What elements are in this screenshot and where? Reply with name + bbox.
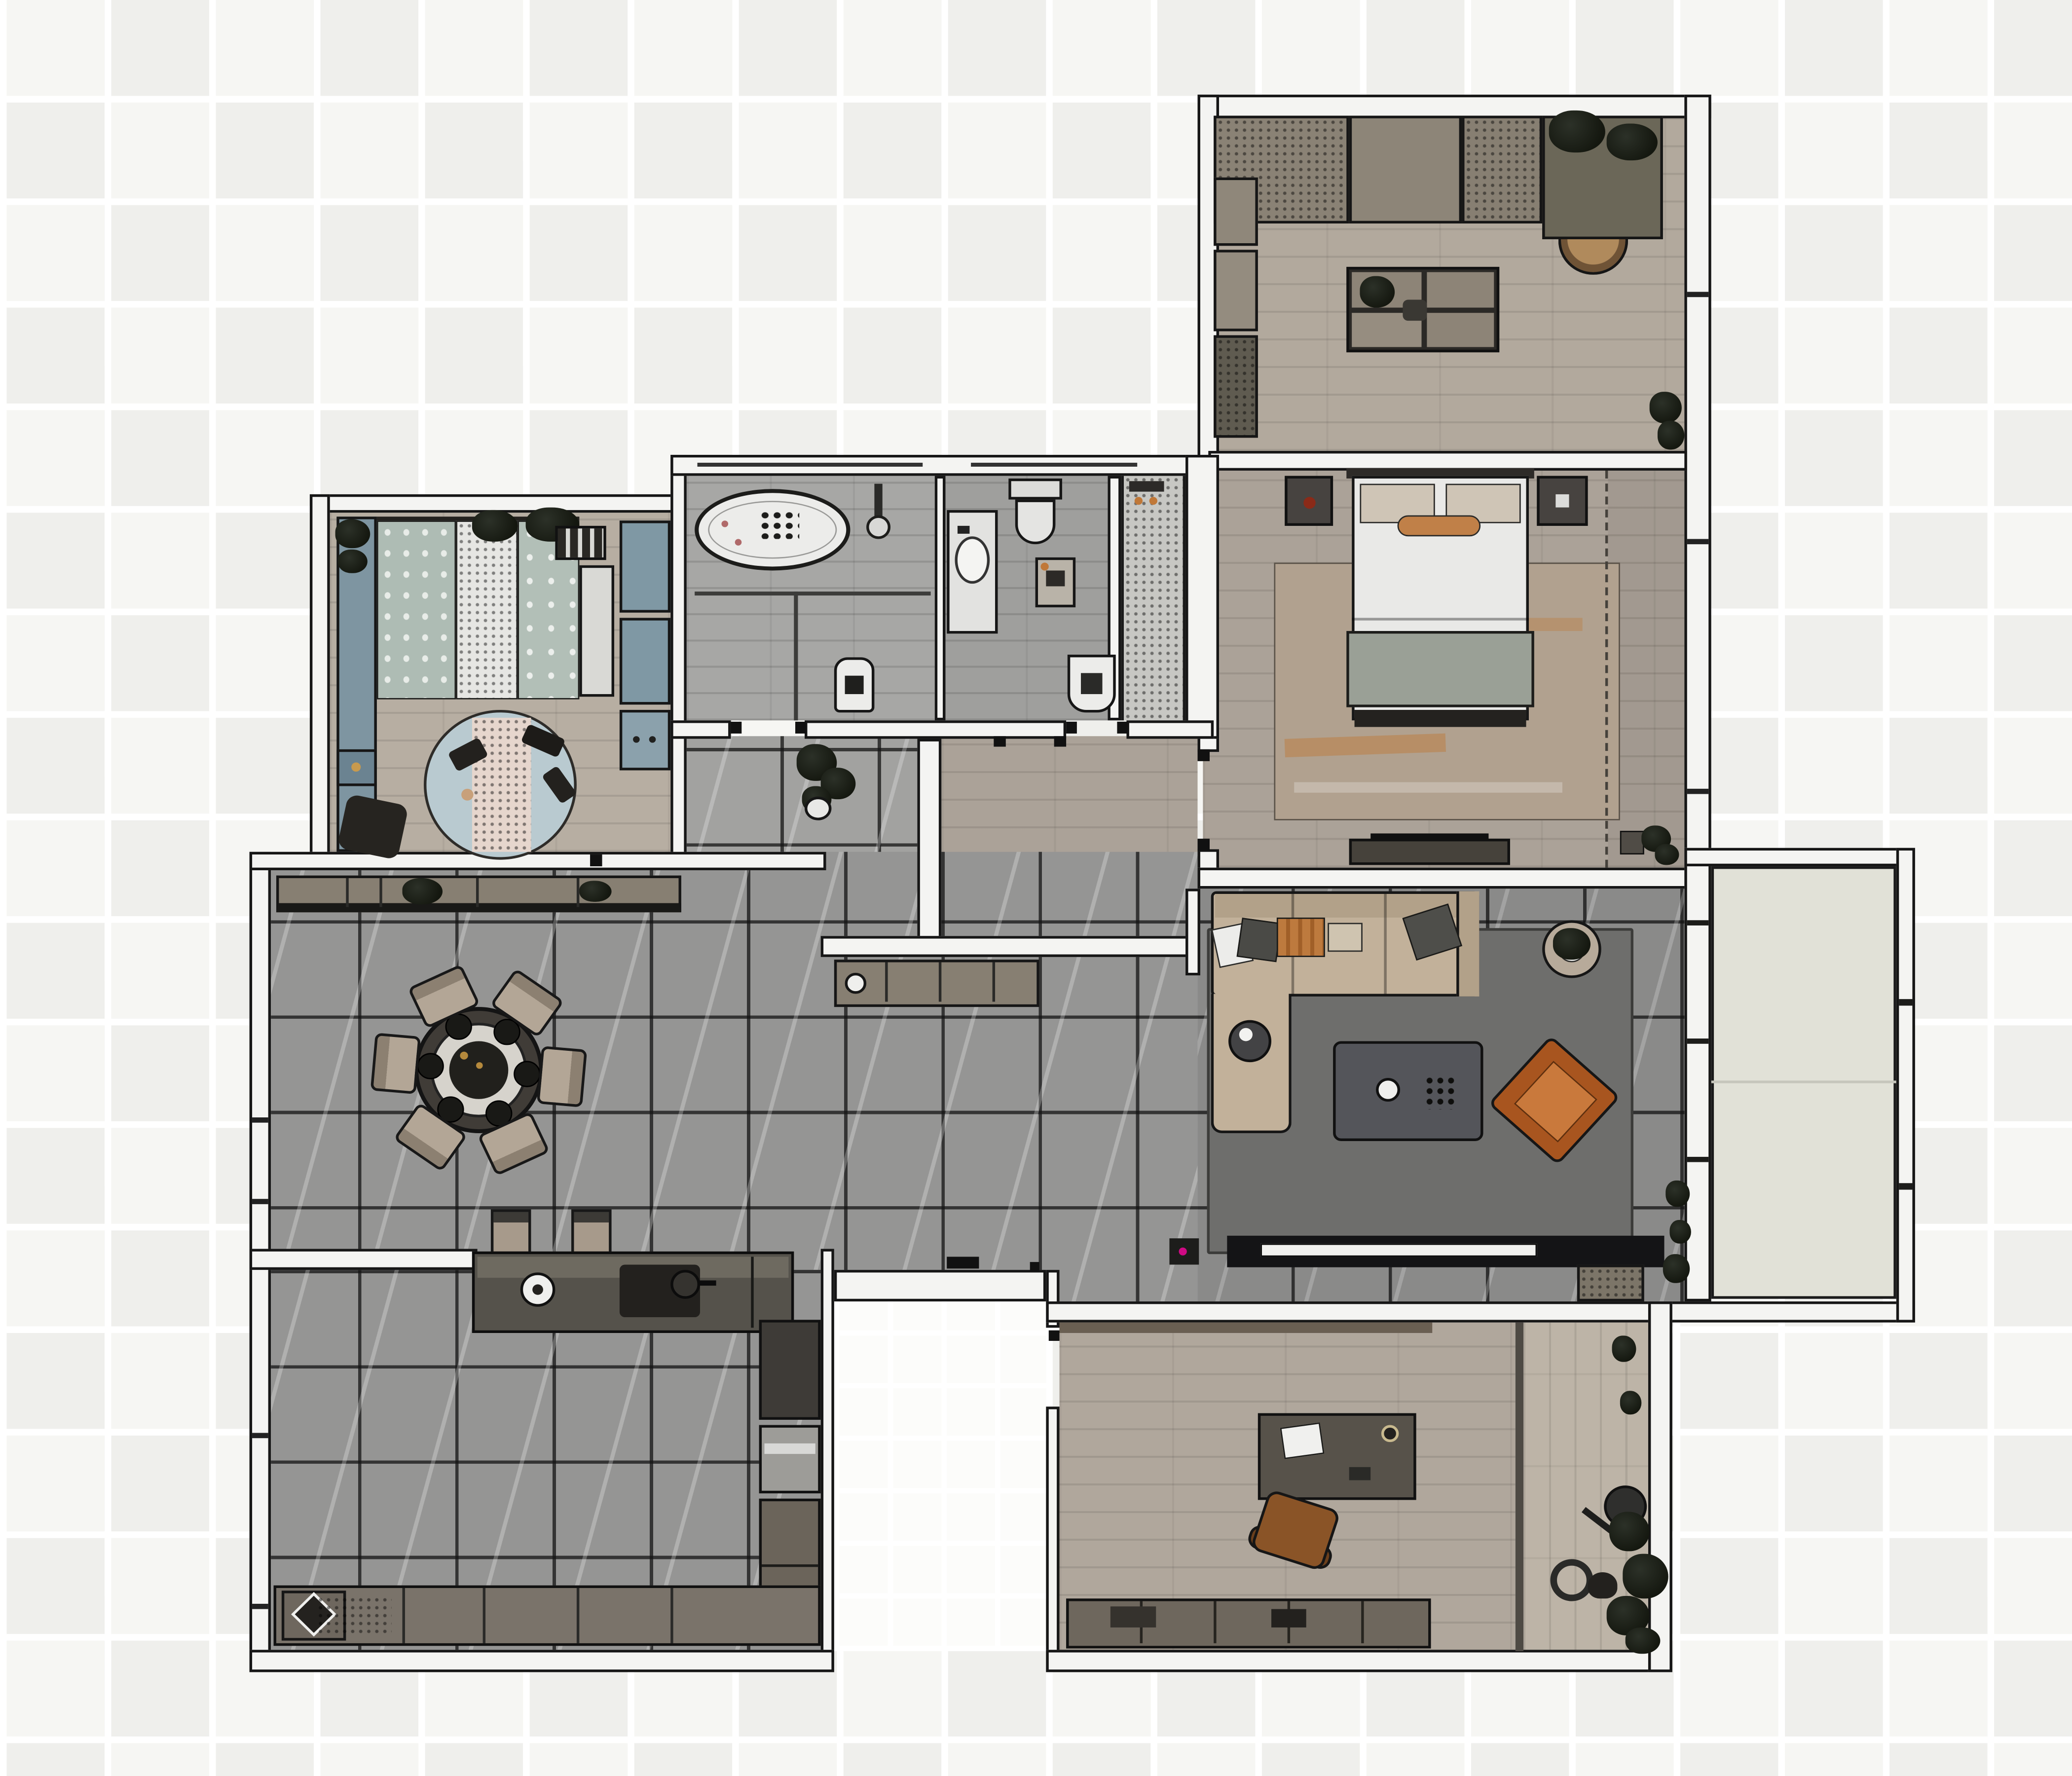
balcony-rail-mark-1 [1899,999,1912,1005]
window-wc-top [971,463,1137,467]
study-table-quadrant-4 [1427,313,1494,347]
study-counter-foliage-1 [1549,111,1605,152]
kitchen-fridge [759,1320,821,1420]
wc-shelf-accent [1040,562,1048,570]
living-small-side-table-decor [1239,1028,1253,1041]
window-tick-dining-2 [252,1199,268,1204]
shower-glass-horizontal [695,592,930,595]
window-tick-dining-1 [252,1117,268,1123]
balcony-right-rail [1896,848,1915,1323]
corridor-sideboard-divider-3 [993,962,995,1002]
office-strip-plant-1 [1612,1335,1636,1362]
wall-south-band [1046,1301,1915,1323]
hall-sideboard-decor-1 [403,878,443,904]
coffee-table-decor [1424,1075,1456,1110]
shower-faucet-knob-1 [1135,497,1143,505]
shower-head [866,516,890,539]
bathtub-petal-pink-1 [721,520,728,527]
window-tick-kitchen-2 [252,1604,268,1609]
sofa-cushion-line-2 [1384,894,1386,994]
washing-machine-door [1081,673,1102,694]
door-hinge-bedroom [1198,749,1210,761]
entrance-door-hinge [1030,1262,1039,1271]
hall-sideboard-divider-2 [379,878,382,907]
shower-head-stem [874,484,882,518]
window-bath-top [698,463,923,467]
office-desk-lamp [1381,1425,1399,1443]
bed-throw-blanket [1346,631,1534,707]
kitchen-counter-divider-3 [577,1588,579,1643]
wall-bath-bottom-b [805,720,1066,739]
shower-glass-vertical [794,592,798,720]
plant-side-table-foliage [1553,928,1591,960]
wall-bedroom-bottom [1198,868,1711,889]
wall-kitchen-bottom [250,1650,834,1672]
dining-chair-1 [537,1046,587,1108]
wall-office-bottom [1046,1650,1672,1672]
kids-bed-band-blanket [456,520,518,699]
hall-wardrobe-panel-2 [620,618,670,704]
media-device-led [1179,1248,1186,1256]
hall-wardrobe-panel-1 [620,520,670,613]
dining-plate-4 [417,1053,444,1079]
kitchen-counter-speckle [317,1596,392,1635]
arc-lamp-base [1550,1559,1593,1601]
wall-living-left-stub [1185,888,1200,975]
hall-wardrobe-cabinet [620,710,670,771]
kids-desk-plant-1 [335,519,370,549]
study-counter-segment-3 [1462,115,1542,223]
kids-desk-plant-2 [338,550,368,573]
living-east-foliage-3 [1663,1254,1690,1283]
balcony-mid-line [1711,1080,1896,1083]
bathtub-petals-dark [759,510,800,539]
wall-kids-left [310,494,330,870]
office-strip-plant-3 [1609,1512,1650,1551]
wall-bath-bottom-a [670,720,731,739]
study-table-quadrant-2 [1427,272,1494,308]
bedroom-tv-console [1349,839,1510,865]
office-strip-plant-4 [1623,1554,1668,1599]
window-tick-right-1 [1687,292,1708,297]
kitchen-mid-cabinet [759,1425,821,1494]
door-hinge-office [1049,1331,1060,1341]
bedroom-tv [1370,833,1488,840]
sofa-pillow-orange [1277,918,1325,957]
wall-bath-wc-divider [935,476,946,721]
toilet-tank [1008,479,1062,500]
sofa-pillow-light [1328,923,1363,952]
balcony-door-mark-1 [1687,920,1708,925]
shower-faucet-knob-2 [1149,497,1157,505]
coffee-table [1333,1041,1483,1141]
wall-bath-bottom-c [1126,720,1214,739]
office-sideboard-item-2 [1271,1609,1306,1628]
bar-stool-2 [571,1210,612,1255]
shower-faucet-bar [1129,481,1164,491]
bed-duvet-fold [1352,618,1529,620]
wall-corridor-bottom [821,936,1198,957]
wall-office-east [1648,1301,1672,1672]
wall-study-top [1198,95,1711,118]
dining-centerpiece [449,1041,509,1099]
window-tick-right-3 [1687,789,1708,794]
study-tall-cabinet-2 [1214,250,1258,331]
study-counter-segment-2 [1349,115,1462,223]
door-mark-wc-2 [1117,722,1128,734]
sofa-pillow-gray-left [1237,918,1282,962]
kitchen-mid-cabinet-stripe [764,1443,815,1454]
window-tick-right-2 [1687,539,1708,545]
dining-chair-4 [370,1033,421,1094]
living-small-side-table [1228,1020,1271,1062]
wc-shelf-item [1046,570,1065,586]
bath-heater-door [845,676,864,694]
hall-sideboard-divider-3 [476,878,479,907]
door-mark-bath-2 [795,722,806,734]
floor-plan-canvas [0,0,2072,1776]
wall-right-outer [1684,95,1711,870]
office-strip-divider [1516,1323,1523,1651]
bedroom-corner-box [1620,831,1644,854]
hall-wardrobe-knob-1 [633,736,640,742]
door-hinge-kids [590,854,602,866]
office-laptop [1280,1422,1325,1459]
corridor-sideboard-bowl [845,973,866,994]
hall-sideboard-divider-1 [346,878,348,907]
study-tall-cabinet-1 [1214,178,1258,246]
balcony-top-rail [1684,848,1915,866]
door-hinge-corridor-1 [994,736,1005,746]
living-east-foliage-2 [1669,1220,1691,1244]
balcony-door-mark-3 [1687,1157,1708,1162]
door-mark-wc-1 [1066,722,1077,734]
kitchen-counter-divider-2 [483,1588,485,1643]
dining-plate-1 [514,1061,540,1087]
corridor-sideboard-divider-1 [885,962,888,1002]
entrance-door-leaf [947,1257,979,1268]
shower-strip-floor [1121,476,1185,721]
wall-office-west-lower [1046,1406,1059,1672]
door-mark-bath-1 [731,722,742,734]
study-corner-foliage-2 [1658,421,1684,450]
living-corner-cabinet [1577,1264,1644,1301]
kids-wardrobe-white [579,565,614,697]
kitchen-counter-divider-1 [403,1588,405,1643]
door-hinge-bedroom-2 [1198,839,1210,851]
bedroom-wardrobe-dashed-line [1605,471,1608,868]
living-east-foliage-1 [1665,1181,1690,1207]
office-phone [1349,1467,1370,1480]
wall-corridor-stub [917,739,941,939]
dining-centerpiece-gold-2 [476,1062,483,1069]
hall-plant-pot [805,797,831,820]
kitchen-counter-divider-4 [670,1588,673,1643]
kitchen-lower-cabinet-divider [762,1564,818,1567]
balcony-rail-mark-2 [1899,1183,1912,1189]
wall-wc-east [1185,455,1219,739]
office-sideboard-divider-4 [1361,1601,1364,1643]
bathtub-petal-pink-2 [735,539,742,546]
study-table-cup [1403,300,1427,321]
study-table-plant [1360,276,1395,308]
wc-faucet [958,526,969,534]
office-sideboard-divider-2 [1214,1601,1216,1643]
office-top-shelf [1060,1323,1433,1333]
office-kettle [1588,1572,1618,1598]
bed-foot-bench [1355,710,1526,727]
island-pan-handle [698,1280,716,1286]
kids-nightstand-lamp [351,763,361,772]
nightstand-left-lamp [1303,497,1315,509]
floor-plan-screenshot [0,0,2072,1776]
wall-kitchen-east [821,1249,834,1672]
sofa-chaise [1211,994,1292,1133]
bedroom-plant-2 [1655,844,1679,865]
wc-basin [955,536,990,584]
window-tick-kitchen-1 [252,1433,268,1439]
toilet-bowl [1015,500,1056,545]
kids-storage-basket [555,526,606,560]
office-strip-plant-6 [1626,1628,1661,1654]
dining-centerpiece-gold-1 [460,1052,468,1060]
entry-notch-area [834,1301,1046,1651]
study-counter-foliage-2 [1607,123,1658,160]
office-strip-plant-2 [1620,1391,1641,1414]
island-divider [751,1257,753,1328]
nightstand-right-lamp [1555,494,1569,508]
tv-screen [1260,1244,1537,1257]
kids-rug-toy-4 [461,789,473,801]
hall-sideboard-decor-2 [579,881,611,902]
island-pan [670,1270,700,1299]
study-corner-foliage-1 [1650,392,1682,423]
office-sideboard-item-1 [1110,1606,1156,1628]
wall-kitchen-top-west [250,1249,478,1270]
wall-kids-bath-divider [670,455,687,870]
balcony-door-mark-2 [1687,1038,1708,1044]
kids-bed-band-sage [377,520,456,699]
island-sink-drain [532,1284,543,1295]
kids-plush-cluster-1 [472,510,518,542]
corridor-sideboard-divider-2 [939,962,941,1002]
wall-notch-top [834,1270,1046,1301]
door-hinge-corridor-2 [1054,736,1066,746]
bar-stool-1 [491,1210,531,1255]
wall-dining-top [250,852,826,870]
study-planter-box [1214,335,1258,438]
bedroom-rug-light-streak [1294,782,1562,792]
coffee-table-bowl [1376,1078,1400,1102]
hall-wardrobe-knob-2 [649,736,656,742]
bed-bolster-orange [1398,516,1481,537]
